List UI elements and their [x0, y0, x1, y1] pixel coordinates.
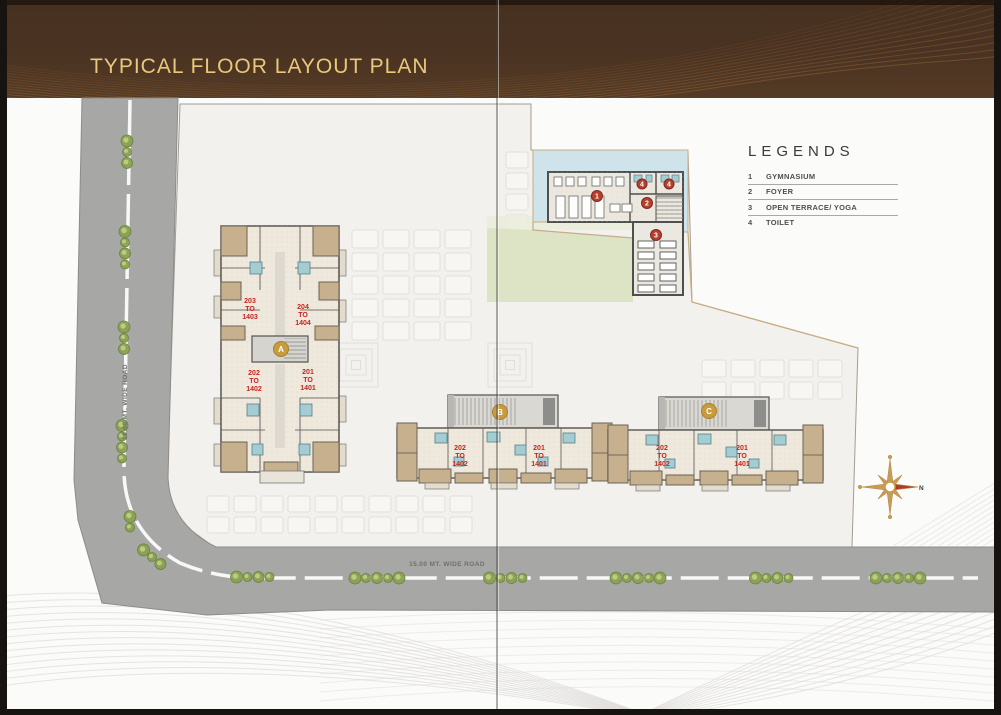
svg-text:4: 4	[640, 182, 644, 189]
site-plan: 203 TO 1403 204 TO 1404 202 TO 1402 201 …	[0, 0, 1001, 715]
tree-cluster	[121, 135, 133, 169]
tree-cluster	[870, 572, 926, 584]
frame-edge-left	[0, 0, 7, 715]
svg-text:1401: 1401	[300, 385, 316, 392]
svg-text:1401: 1401	[531, 461, 547, 468]
svg-text:2: 2	[645, 201, 649, 208]
svg-text:1404: 1404	[295, 320, 311, 327]
svg-text:3: 3	[654, 233, 658, 240]
svg-text:TO: TO	[534, 453, 544, 460]
unit-label: 201	[736, 445, 748, 452]
svg-text:1402: 1402	[452, 461, 468, 468]
unit-label: 201	[533, 445, 545, 452]
compass-north-label: N	[919, 485, 924, 492]
svg-text:1403: 1403	[242, 314, 258, 321]
unit-label: 202	[454, 445, 466, 452]
svg-text:TO: TO	[298, 312, 308, 319]
road-label-bottom: 15.00 MT. WIDE ROAD	[409, 561, 485, 568]
svg-text:TO: TO	[657, 453, 667, 460]
road-label-left: 18.00 MT. WIDE ROAD	[122, 364, 129, 440]
svg-text:TO: TO	[455, 453, 465, 460]
svg-text:TO: TO	[303, 377, 313, 384]
legend-item: 2 FOYER	[748, 185, 898, 201]
corridor	[275, 364, 285, 448]
tree-cluster	[124, 511, 136, 533]
svg-text:TO: TO	[249, 378, 259, 385]
unit-label: 202	[248, 370, 260, 377]
frame-edge-right	[994, 0, 1001, 715]
svg-text:1402: 1402	[654, 461, 670, 468]
svg-text:1402: 1402	[246, 386, 262, 393]
legend-item: 3 OPEN TERRACE/ YOGA	[748, 200, 898, 216]
legends-panel: LEGENDS 1 GYMNASIUM 2 FOYER 3 OPEN TERRA…	[748, 143, 898, 230]
compass-icon: N	[858, 455, 924, 519]
tree-cluster	[118, 321, 130, 355]
frame-edge-bottom	[0, 709, 1001, 715]
legend-item: 1 GYMNASIUM	[748, 169, 898, 185]
svg-text:1: 1	[595, 194, 599, 201]
stairs	[656, 196, 683, 222]
brochure-page: TYPICAL FLOOR LAYOUT PLAN	[0, 0, 1001, 715]
svg-text:4: 4	[667, 182, 671, 189]
unit-label: 201	[302, 369, 314, 376]
legends-title: LEGENDS	[748, 143, 898, 160]
legend-item: 4 TOILET	[748, 216, 898, 231]
svg-text:1401: 1401	[734, 461, 750, 468]
svg-text:TO: TO	[737, 453, 747, 460]
page-fold-line	[496, 0, 498, 715]
tree-cluster	[349, 572, 405, 584]
entry-porch	[260, 471, 304, 483]
svg-text:A: A	[278, 345, 284, 354]
svg-text:C: C	[706, 407, 712, 416]
unit-label: 202	[656, 445, 668, 452]
corridor	[275, 252, 285, 336]
svg-text:TO: TO	[245, 306, 255, 313]
unit-label: 204	[297, 304, 309, 311]
unit-label: 203	[244, 298, 256, 305]
tree-cluster	[610, 572, 666, 584]
lawn	[487, 228, 633, 302]
